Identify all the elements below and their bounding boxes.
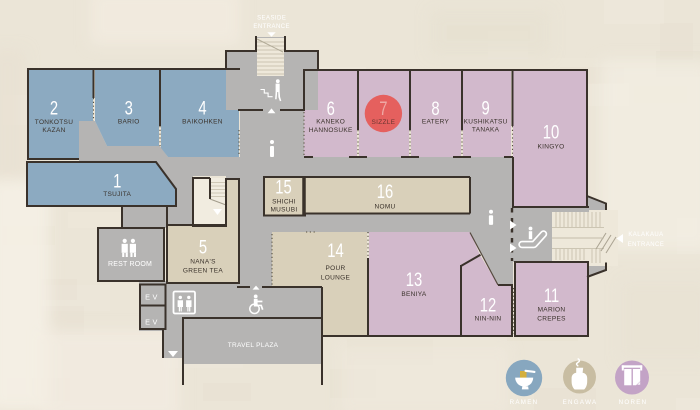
svg-text:ENTRANCE: ENTRANCE xyxy=(253,24,290,30)
svg-text:CREPES: CREPES xyxy=(537,316,566,323)
svg-text:BENIYA: BENIYA xyxy=(401,291,427,298)
svg-text:16: 16 xyxy=(377,181,393,202)
svg-text:EV: EV xyxy=(145,318,160,327)
svg-text:EV: EV xyxy=(145,293,160,302)
svg-text:MUSUBI: MUSUBI xyxy=(270,207,297,214)
svg-text:SEASIDE: SEASIDE xyxy=(257,15,286,21)
svg-text:2: 2 xyxy=(50,98,58,119)
svg-text:SIZZLE: SIZZLE xyxy=(371,119,395,126)
svg-text:GREEN TEA: GREEN TEA xyxy=(183,268,224,275)
svg-text:RAMEN: RAMEN xyxy=(510,399,539,406)
svg-text:9: 9 xyxy=(481,98,489,119)
svg-text:NOMU: NOMU xyxy=(374,204,395,211)
svg-text:TRAVEL PLAZA: TRAVEL PLAZA xyxy=(228,342,279,349)
svg-text:ENGAWA: ENGAWA xyxy=(563,399,598,406)
svg-text:3: 3 xyxy=(125,98,133,119)
svg-text:BAIKOHKEN: BAIKOHKEN xyxy=(182,119,223,126)
svg-text:TONKOTSU: TONKOTSU xyxy=(35,119,73,126)
svg-text:BARIO: BARIO xyxy=(118,119,140,126)
svg-text:8: 8 xyxy=(431,98,439,119)
svg-text:TANAKA: TANAKA xyxy=(472,127,500,134)
svg-text:REST ROOM: REST ROOM xyxy=(108,261,152,268)
svg-text:POUR: POUR xyxy=(326,265,346,272)
svg-text:TSUJITA: TSUJITA xyxy=(103,191,131,198)
svg-text:EATERY: EATERY xyxy=(422,119,450,126)
svg-text:12: 12 xyxy=(480,295,496,316)
svg-text:15: 15 xyxy=(275,177,291,198)
svg-text:HANNOSUKE: HANNOSUKE xyxy=(309,127,353,134)
svg-text:4: 4 xyxy=(198,98,206,119)
svg-text:KAZAN: KAZAN xyxy=(42,127,65,134)
svg-text:LOUNGE: LOUNGE xyxy=(321,275,351,282)
svg-text:14: 14 xyxy=(327,240,343,261)
svg-text:11: 11 xyxy=(544,285,559,306)
svg-text:7: 7 xyxy=(379,98,387,119)
svg-text:MARION: MARION xyxy=(538,307,566,314)
svg-text:13: 13 xyxy=(406,269,422,290)
svg-text:KALAKAUA: KALAKAUA xyxy=(628,232,663,238)
svg-text:KANEKO: KANEKO xyxy=(316,119,345,126)
svg-text:NIN-NIN: NIN-NIN xyxy=(475,316,502,323)
svg-text:1: 1 xyxy=(113,171,121,192)
svg-text:5: 5 xyxy=(199,237,207,258)
svg-text:KUSHIKATSU: KUSHIKATSU xyxy=(464,119,508,126)
svg-text:NANA'S: NANA'S xyxy=(190,259,216,266)
svg-text:SHICHI: SHICHI xyxy=(272,199,296,206)
svg-text:NOREN: NOREN xyxy=(619,399,648,406)
svg-text:6: 6 xyxy=(327,98,335,119)
svg-text:ENTRANCE: ENTRANCE xyxy=(628,242,665,248)
svg-text:KINGYO: KINGYO xyxy=(537,144,564,151)
svg-text:10: 10 xyxy=(543,122,559,143)
